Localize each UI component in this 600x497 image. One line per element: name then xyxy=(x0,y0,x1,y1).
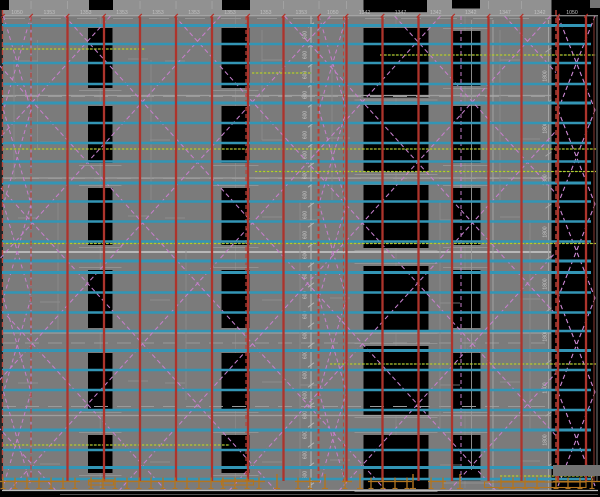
svg-text:600: 600 xyxy=(303,131,309,140)
svg-text:600: 600 xyxy=(303,411,309,420)
svg-text:1050: 1050 xyxy=(566,10,578,16)
svg-text:600: 600 xyxy=(303,111,309,120)
svg-text:600: 600 xyxy=(303,391,309,400)
svg-text:600: 600 xyxy=(303,91,309,100)
svg-text:1353: 1353 xyxy=(43,10,55,16)
svg-text:1353: 1353 xyxy=(224,10,236,16)
svg-text:1800: 1800 xyxy=(543,434,549,445)
svg-text:600: 600 xyxy=(303,191,309,200)
svg-text:1353: 1353 xyxy=(152,10,164,16)
svg-text:1353: 1353 xyxy=(80,10,92,16)
svg-text:1050: 1050 xyxy=(327,10,339,16)
svg-text:1342: 1342 xyxy=(534,10,546,16)
svg-text:600: 600 xyxy=(303,71,309,80)
svg-text:600: 600 xyxy=(303,231,309,240)
svg-text:1342: 1342 xyxy=(359,10,371,16)
svg-text:1800: 1800 xyxy=(543,278,549,289)
svg-text:1347: 1347 xyxy=(499,10,511,16)
svg-text:600: 600 xyxy=(303,31,309,40)
svg-text:600: 600 xyxy=(303,451,309,460)
svg-text:1353: 1353 xyxy=(116,10,128,16)
svg-text:600: 600 xyxy=(303,251,309,260)
svg-text:1353: 1353 xyxy=(260,10,272,16)
svg-text:600: 600 xyxy=(303,211,309,220)
svg-text:1050: 1050 xyxy=(11,10,23,16)
svg-text:600: 600 xyxy=(303,51,309,60)
svg-text:600: 600 xyxy=(303,371,309,380)
svg-text:1353: 1353 xyxy=(295,10,307,16)
svg-text:600: 600 xyxy=(303,431,309,440)
svg-text:1800: 1800 xyxy=(543,226,549,237)
svg-text:1347: 1347 xyxy=(395,10,407,16)
svg-text:1800: 1800 xyxy=(543,70,549,81)
svg-text:1342: 1342 xyxy=(430,10,442,16)
svg-text:1342: 1342 xyxy=(465,10,477,16)
svg-text:1353: 1353 xyxy=(188,10,200,16)
